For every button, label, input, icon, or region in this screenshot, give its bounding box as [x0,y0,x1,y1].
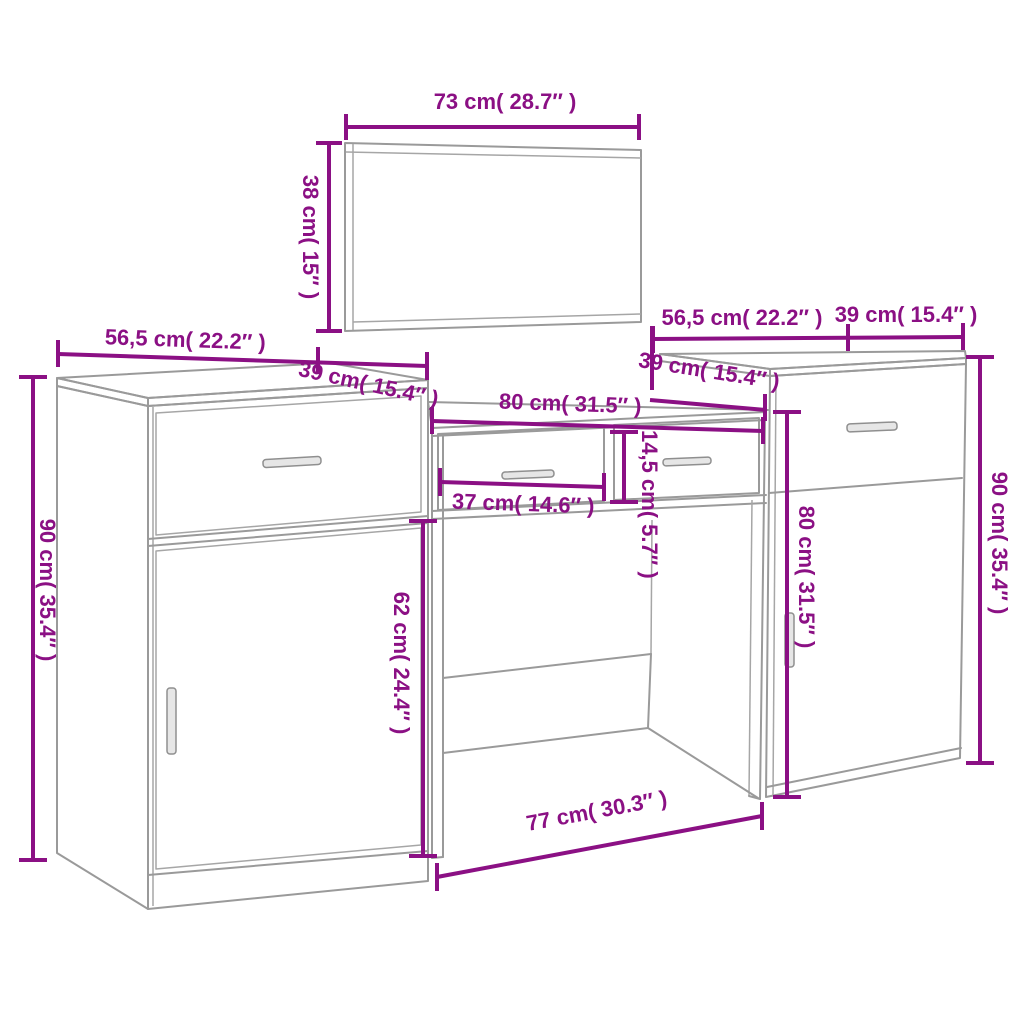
dimension-label-table-drawer-width: 37 cm( 14.6″ ) [452,489,595,519]
table-right-panel-inner [749,500,752,796]
right-cabinet-stile-line [773,375,776,796]
mirror-frame [345,143,641,331]
dimension-label-table-drawer-height: 14,5 cm( 5.7″ ) [637,430,662,579]
left-cabinet [57,363,428,909]
table-right-drawer-handle [663,457,711,466]
dimension-label-left-cabinet-width: 56,5 cm( 22.2″ ) [104,324,266,355]
dimension-table-drawer-height: 14,5 cm( 5.7″ ) [610,430,662,579]
dimension-right-cabinet-height: 90 cm( 35.4″ ) [966,357,1012,763]
table-left-drawer-handle [502,470,554,479]
dimension-label-right-cabinet-depth: 39 cm( 15.4″ ) [835,302,978,327]
mirror [345,143,641,331]
dimension-right-cabinet-door-height: 80 cm( 31.5″ ) [773,412,819,797]
right-cabinet-drawer-handle [847,422,897,432]
dimension-table-clearance-height: 62 cm( 24.4″ ) [389,521,437,856]
left-cabinet-door-handle [167,688,176,754]
table-stretcher-top [443,654,651,678]
right-cabinet-plinth-line [767,748,961,787]
dimension-label-mirror-width: 73 cm( 28.7″ ) [434,89,577,114]
left-cabinet-plinth-line [148,851,428,875]
dimension-label-table-base-width: 77 cm( 30.3″ ) [524,785,669,836]
product-dimension-diagram: 73 cm( 28.7″ ) 38 cm( 15″ ) 56,5 cm( 22.… [0,0,1024,1024]
left-cabinet-divider-top [148,516,428,539]
dimension-label-table-width: 80 cm( 31.5″ ) [499,389,642,419]
mirror-inner-top-line [346,152,641,158]
right-cabinet-divider [769,478,962,493]
dimension-label-right-cabinet-width: 56,5 cm( 22.2″ ) [662,305,823,330]
table-stretcher-bottom [443,728,648,753]
dimension-label-right-cabinet-height: 90 cm( 35.4″ ) [987,472,1012,615]
dimension-label-mirror-height: 38 cm( 15″ ) [298,175,323,299]
dimension-label-right-cabinet-door-height: 80 cm( 31.5″ ) [794,506,819,649]
dimension-table-width: 80 cm( 31.5″ ) [432,389,763,444]
left-cabinet-side-panel [57,386,148,909]
dressing-table [428,402,768,858]
dimension-mirror-width: 73 cm( 28.7″ ) [346,89,639,140]
dimension-label-left-cabinet-height: 90 cm( 35.4″ ) [35,519,60,662]
diagram-canvas: 73 cm( 28.7″ ) 38 cm( 15″ ) 56,5 cm( 22.… [0,0,1024,1024]
dimension-left-cabinet-height: 90 cm( 35.4″ ) [19,377,60,860]
table-stretcher-end [648,654,651,728]
dimension-table-base-width: 77 cm( 30.3″ ) [437,785,762,891]
left-cabinet-top-left-edge [57,378,148,406]
left-cabinet-divider-bottom [148,523,428,546]
dimension-label-table-clearance-height: 62 cm( 24.4″ ) [389,592,414,735]
left-cabinet-drawer-handle [263,456,321,467]
dimension-mirror-height: 38 cm( 15″ ) [298,143,342,331]
dimension-right-cabinet-top: 56,5 cm( 22.2″ ) 39 cm( 15.4″ ) [653,302,977,353]
mirror-inner-bottom-line [353,314,641,322]
left-cabinet-door [156,528,421,869]
table-right-panel-outer [760,420,765,799]
